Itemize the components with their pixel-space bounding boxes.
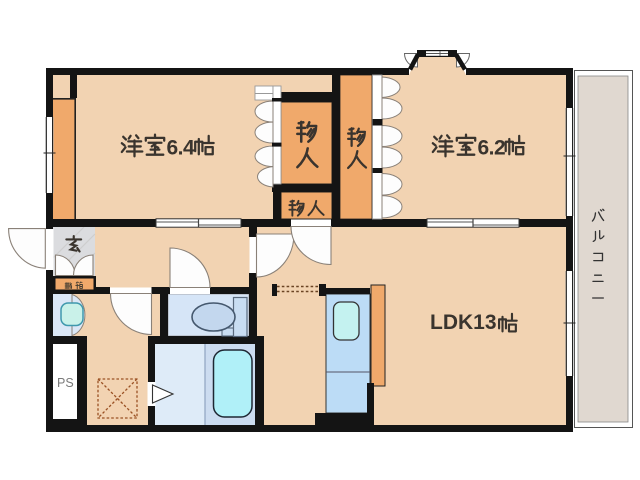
svg-text:6.4: 6.4	[167, 137, 196, 160]
svg-text:LDK13: LDK13	[430, 311, 497, 334]
svg-text:PS: PS	[57, 376, 74, 390]
svg-text:6.2: 6.2	[478, 137, 506, 160]
